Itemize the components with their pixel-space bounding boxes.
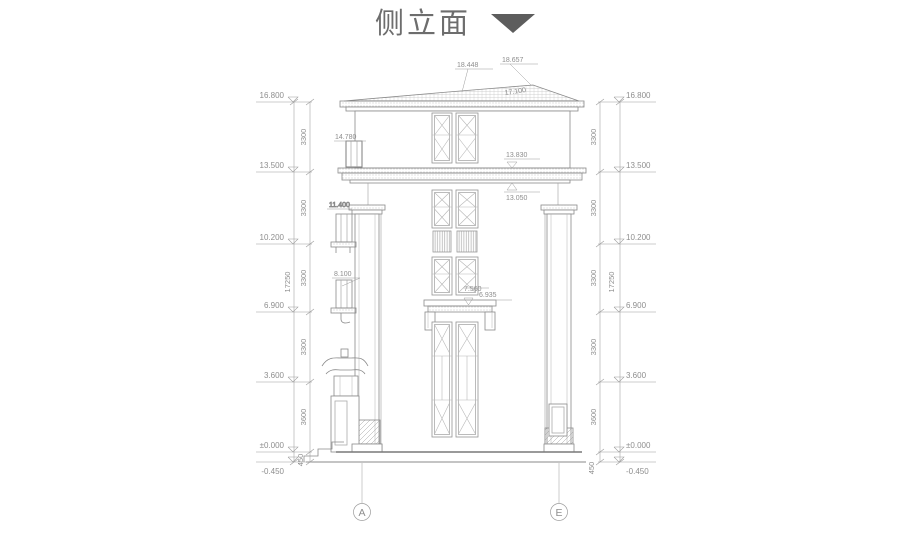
elevation-label: 13.500	[626, 161, 651, 170]
elevation-label: -0.450	[626, 467, 649, 476]
annotation-win3f: 11.400	[327, 202, 352, 209]
elevation-label: 13.500	[260, 161, 285, 170]
segment-dim: 3300	[589, 270, 598, 287]
window-icon	[432, 190, 478, 228]
elevation-drawing: 11.400	[0, 0, 910, 535]
elevation-label: 16.800	[260, 91, 285, 100]
side-window-icon	[331, 214, 356, 253]
cornice-band	[338, 168, 586, 183]
elevation-label: -0.450	[261, 467, 284, 476]
segment-dim: 3300	[589, 129, 598, 146]
balcony-railing	[433, 231, 477, 252]
grid-label-e: E	[555, 507, 562, 519]
segment-dim: 450	[296, 454, 305, 467]
fourth-floor-wall	[346, 111, 570, 168]
elevation-label: 3.600	[264, 371, 285, 380]
elevation-label: 10.200	[626, 233, 651, 242]
segment-dim: 3300	[299, 339, 308, 356]
segment-dim: 450	[587, 462, 596, 475]
segment-dim: 3300	[299, 270, 308, 287]
grid-label-a: A	[358, 507, 365, 519]
dimension-column-right: 16.800 13.500 10.200 6.900 3.600 ±0.000 …	[587, 91, 656, 476]
elevation-label: 10.200	[260, 233, 285, 242]
level-label: 11.400	[329, 202, 350, 209]
elevation-label: ±0.000	[260, 441, 285, 450]
elevation-sheet: 侧立面	[0, 0, 910, 535]
window-icon	[456, 113, 478, 163]
segment-dim: 3600	[589, 409, 598, 426]
level-label: 13.050	[506, 195, 528, 202]
roof	[340, 85, 584, 111]
grid-axes: A E	[354, 463, 568, 521]
level-label: 14.780	[335, 134, 357, 141]
roof-dim-right: 18.657	[502, 57, 524, 64]
side-window-icon	[346, 141, 362, 167]
roof-dim-left: 18.448	[457, 62, 479, 69]
elevation-label: 3.600	[626, 371, 647, 380]
dimension-column-left: 16.800 13.500 10.200 6.900 3.600 ±0.000 …	[256, 91, 314, 476]
level-label: 13.830	[506, 152, 528, 159]
level-label: 6.935	[479, 292, 497, 299]
elevation-label: 6.900	[264, 301, 285, 310]
segment-dim: 3300	[589, 200, 598, 217]
window-icon	[432, 322, 478, 437]
level-label: 8.100	[334, 271, 352, 278]
segment-dim: 3300	[299, 129, 308, 146]
elevation-label: 16.800	[626, 91, 651, 100]
elevation-label: 6.900	[626, 301, 647, 310]
elevation-label: ±0.000	[626, 441, 651, 450]
side-window-icon	[331, 280, 356, 323]
overall-dim: 17250	[283, 272, 292, 293]
overall-dim: 17250	[607, 272, 616, 293]
segment-dim: 3300	[299, 200, 308, 217]
segment-dim: 3300	[589, 339, 598, 356]
window-icon	[432, 113, 452, 163]
segment-dim: 3600	[299, 409, 308, 426]
